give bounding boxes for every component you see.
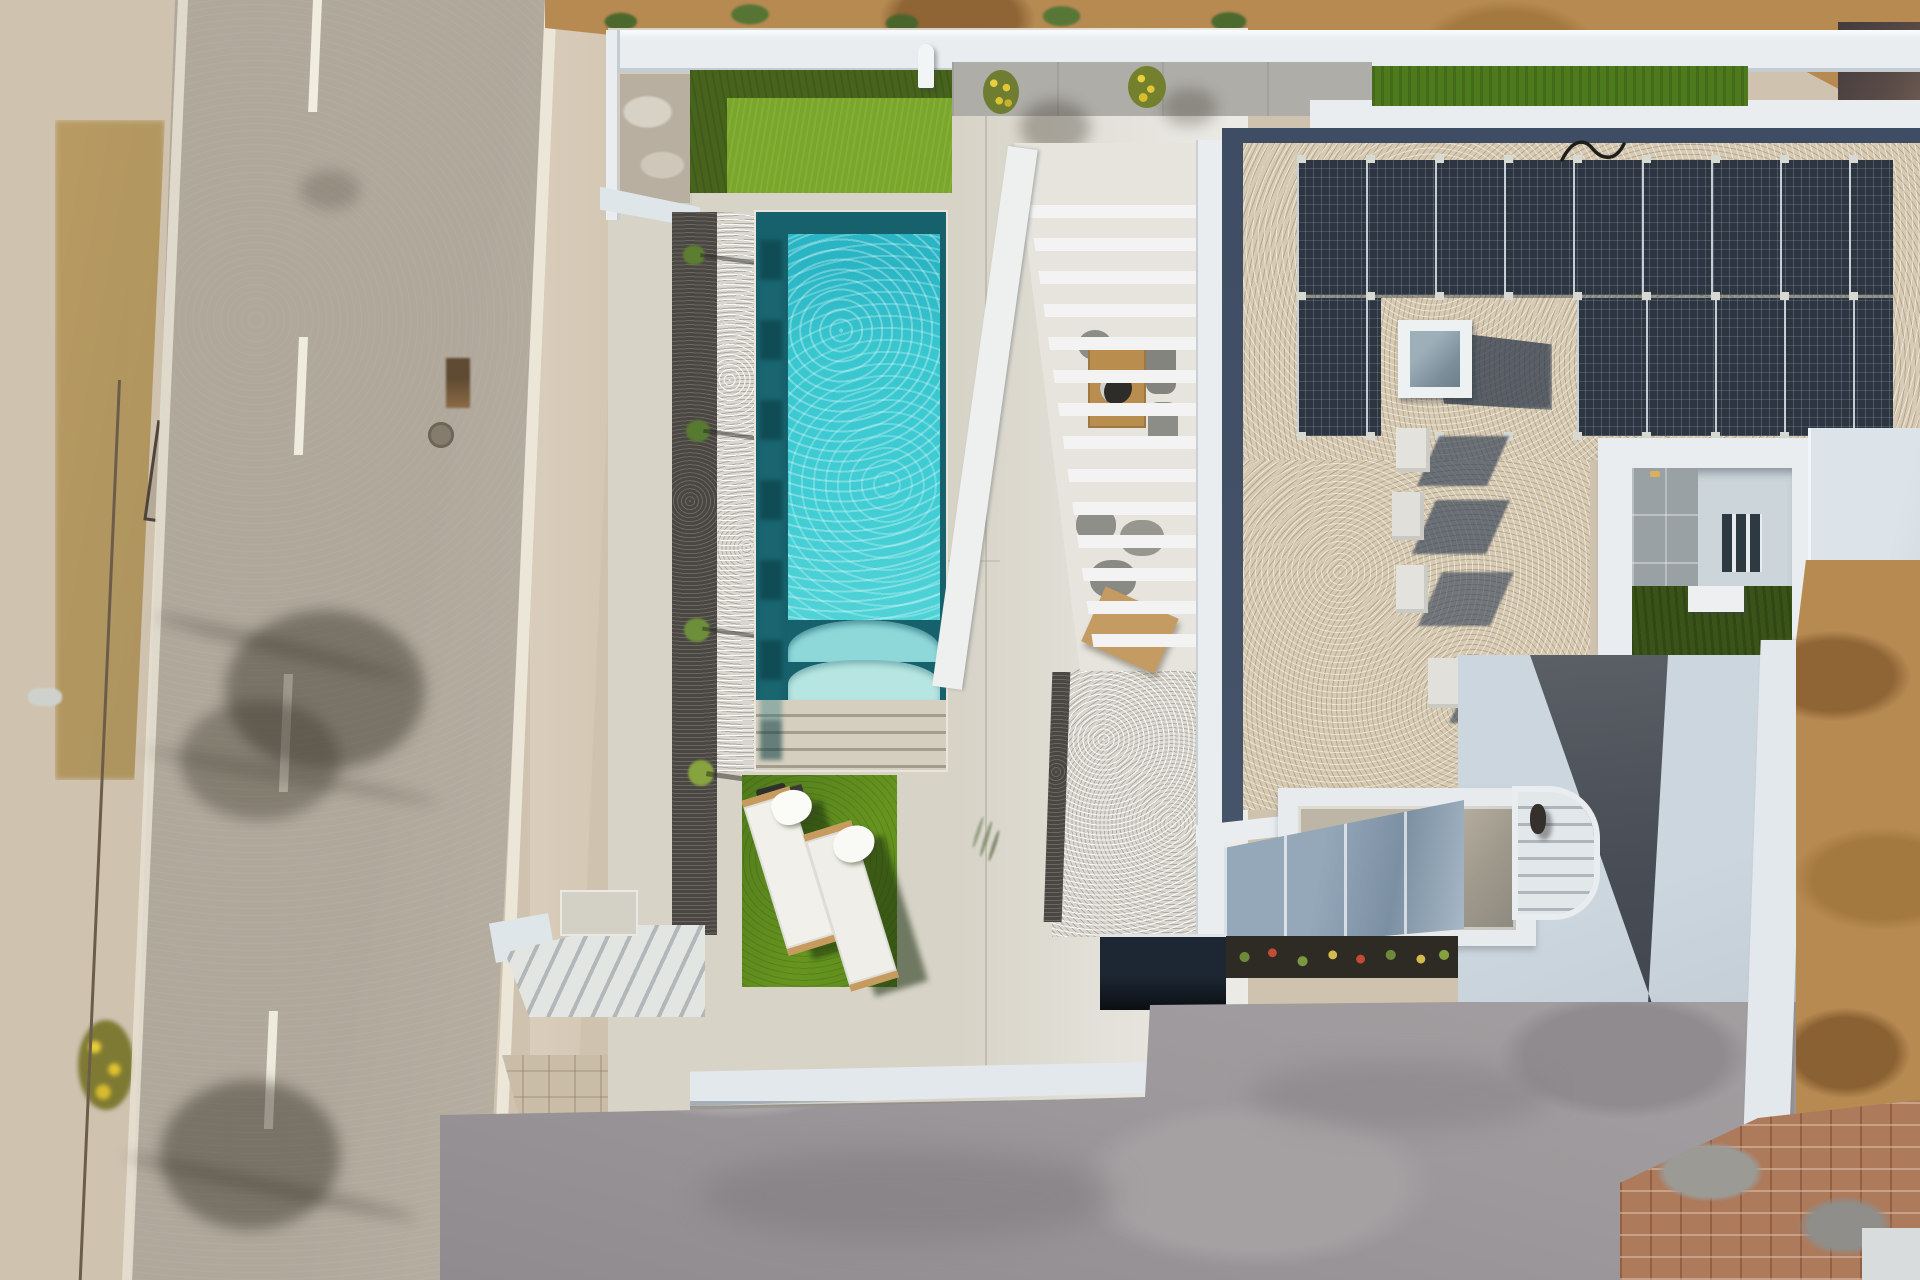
ac-unit [1396,565,1428,613]
driveway-stain [1250,1060,1550,1130]
earthworks-right [1796,560,1920,1140]
roof-border-gravel-left [1222,128,1243,830]
entry-landing [560,890,638,936]
entry-pad [618,72,692,205]
pool-roman-step-2 [788,660,940,700]
tree-shadow [160,1080,340,1230]
brick-white-slab [1862,1228,1920,1280]
deck-joint [985,115,987,1075]
tree-shadow-small [300,170,360,210]
ac-unit [1396,428,1430,472]
person [1530,804,1546,834]
solar-array-row2-left [1297,298,1381,436]
pool-steps [756,700,946,770]
pool-edge-reflection [760,240,782,760]
pool-water [788,234,940,620]
wall-light [1650,471,1660,477]
aerial-photo: Top-down drone photo of a modern white v… [0,0,1920,1280]
driveway-stain [700,1150,1120,1240]
white-gravel-strip [717,212,759,772]
road-stain [446,358,470,408]
flower-pot [983,70,1019,114]
solar-array-row2-right [1577,298,1893,436]
flower-pot [1128,66,1166,108]
flower-planter [1226,936,1458,978]
solar-mount-feet [1297,292,1893,300]
upper-lawn-bright [727,98,952,193]
gravel-planter [672,212,717,935]
roof-cable [1558,130,1628,166]
courtyard-window [1722,514,1762,572]
pot-shadow [1162,88,1217,126]
solar-array-row1 [1297,160,1893,295]
courtyard-bench [1688,586,1744,612]
black-pond [1100,934,1226,1010]
skylight-glass [1410,331,1460,387]
pergola-right-rail [1196,140,1224,940]
outdoor-shower [918,44,934,88]
roof-lawn-strip [1372,66,1748,106]
curved-stairs [1518,792,1594,914]
debris-white [28,688,62,706]
manhole [428,422,454,448]
ac-unit [1392,492,1424,540]
